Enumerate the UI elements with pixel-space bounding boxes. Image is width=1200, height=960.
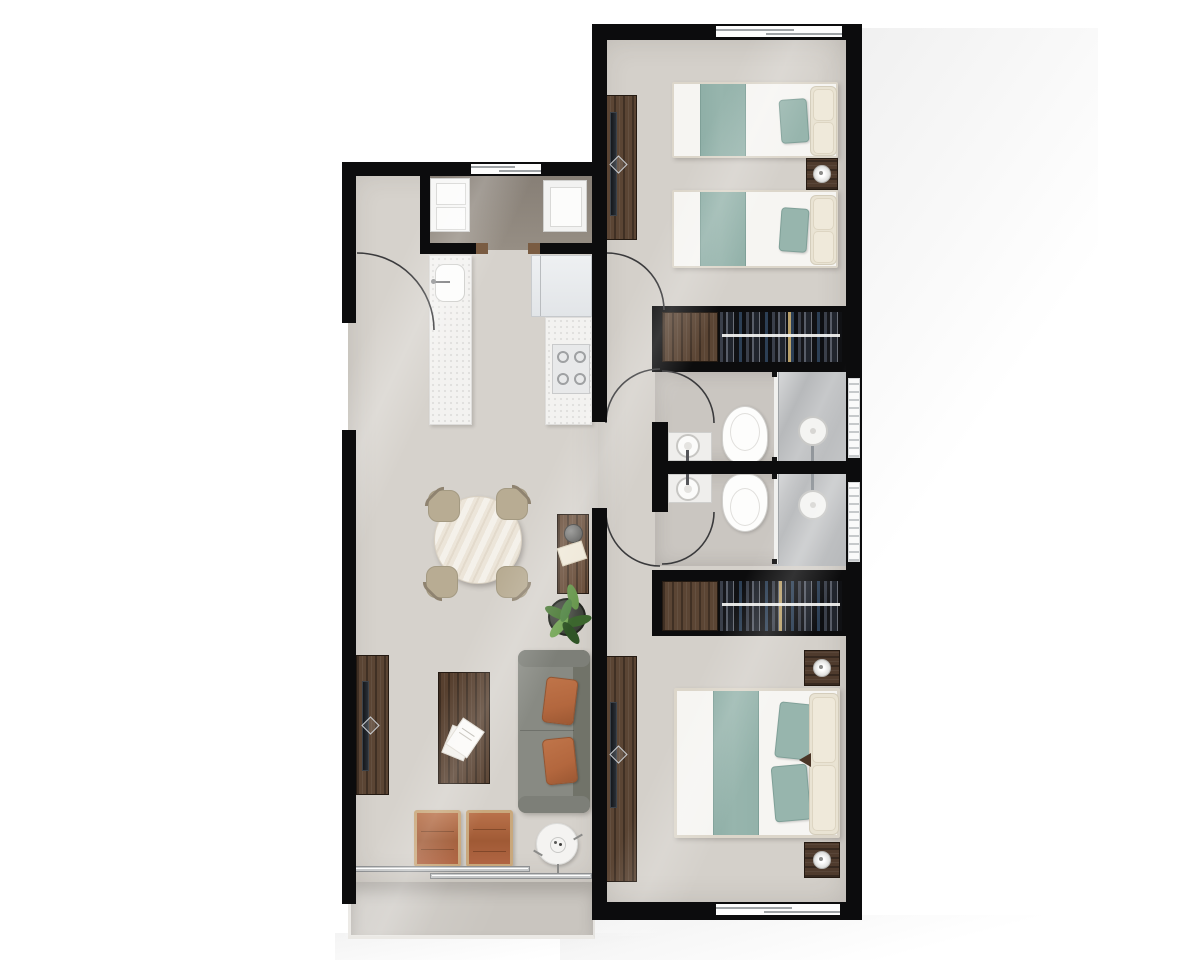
bedroom1-window <box>716 26 842 37</box>
shower2-window <box>848 482 860 562</box>
wardrobe-dresser <box>662 312 718 362</box>
wardrobe-rail <box>722 334 840 337</box>
wardrobe-dresser <box>662 581 718 631</box>
bed-pillow <box>778 207 809 253</box>
headboard <box>810 195 837 265</box>
washing-machine <box>430 178 470 232</box>
leather-ottoman <box>466 810 513 867</box>
headboard-accent <box>799 753 811 767</box>
ambient-shadow-bottom <box>560 915 1100 960</box>
kitchen-faucet <box>434 281 450 283</box>
wall-top-left-wing <box>342 162 594 176</box>
bedroom2-lamp-bottom <box>813 851 831 869</box>
dining-chair <box>426 566 458 598</box>
counter-edge-wood <box>476 243 488 254</box>
bedroom2-window <box>716 904 840 915</box>
shower2-glass-door <box>774 474 779 564</box>
shower1-window <box>848 378 860 458</box>
sofa-armrest <box>518 796 590 813</box>
counter-edge-wood <box>528 243 540 254</box>
wall-bathroom-left-a <box>652 422 668 461</box>
wardrobe-clothes <box>720 581 842 631</box>
utility-appliance <box>543 180 587 232</box>
sliding-door-rail <box>430 873 592 879</box>
shower1-head <box>798 416 828 446</box>
dining-chair <box>496 566 528 598</box>
balcony-floor <box>348 882 595 939</box>
bed-runner <box>713 691 759 835</box>
wall-bathroom-left-b <box>652 474 668 512</box>
shower1-pipe <box>811 446 814 462</box>
glass-hinge <box>772 372 777 377</box>
gas-cooktop <box>552 344 590 394</box>
bathroom2-toilet <box>722 474 768 532</box>
bathroom1-toilet <box>722 406 768 464</box>
sofa <box>518 650 590 813</box>
ambient-shadow-right <box>858 28 1098 728</box>
bed-pillow <box>771 764 812 823</box>
kitchen-sink <box>435 264 465 302</box>
bedroom2-lamp-top <box>813 659 831 677</box>
sofa-pillow <box>542 736 579 785</box>
headboard <box>809 693 839 835</box>
bedroom2-tv-console <box>604 656 637 882</box>
wall-bathroom-middle <box>652 461 862 474</box>
shower2-floor <box>774 474 846 566</box>
wall-divider-lower <box>592 508 607 904</box>
bed-runner <box>700 84 746 156</box>
wall-left-upper <box>342 162 356 323</box>
shower2-pipe <box>811 474 814 490</box>
shower2-head <box>798 490 828 520</box>
sliding-door-rail <box>352 866 530 872</box>
dining-chair <box>496 488 528 520</box>
kitchen-faucet-knob <box>431 279 436 284</box>
dining-chair <box>428 490 460 522</box>
refrigerator <box>531 255 592 317</box>
glass-hinge <box>772 559 777 564</box>
potted-plant <box>542 590 590 646</box>
twin-bed-2 <box>672 190 838 268</box>
glass-hinge <box>772 474 777 479</box>
leather-ottoman <box>414 810 461 867</box>
double-bed <box>674 688 840 838</box>
laundry-window <box>471 164 541 174</box>
bedroom1-wardrobe <box>652 306 848 372</box>
wardrobe-rail <box>722 603 840 606</box>
bed-runner <box>700 192 746 266</box>
floor-plan <box>0 0 1200 960</box>
headboard <box>810 86 837 156</box>
side-table <box>536 823 578 865</box>
wall-divider-upper <box>592 24 607 422</box>
sofa-backrest <box>573 650 590 813</box>
sofa-pillow <box>541 676 578 726</box>
shower1-glass-door <box>774 372 779 462</box>
bedroom1-lamp <box>813 165 831 183</box>
twin-bed-1 <box>672 82 838 158</box>
wardrobe-clothes <box>720 312 842 362</box>
bed-pillow <box>778 98 809 144</box>
sofa-armrest <box>518 650 590 667</box>
wall-left-lower <box>342 430 356 904</box>
bedroom2-wardrobe <box>652 570 848 636</box>
